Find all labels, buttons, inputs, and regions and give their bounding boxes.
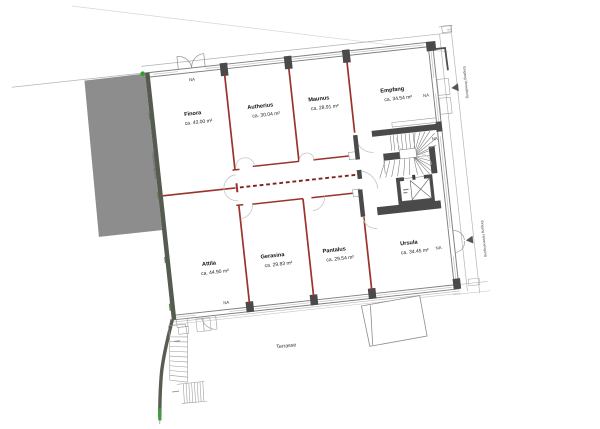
svg-text:NA: NA [189, 77, 196, 83]
svg-text:NA: NA [447, 27, 451, 31]
svg-text:NA: NA [432, 136, 439, 142]
svg-text:NA: NA [223, 300, 230, 306]
svg-text:NA: NA [435, 245, 442, 251]
svg-text:NA: NA [423, 92, 430, 98]
